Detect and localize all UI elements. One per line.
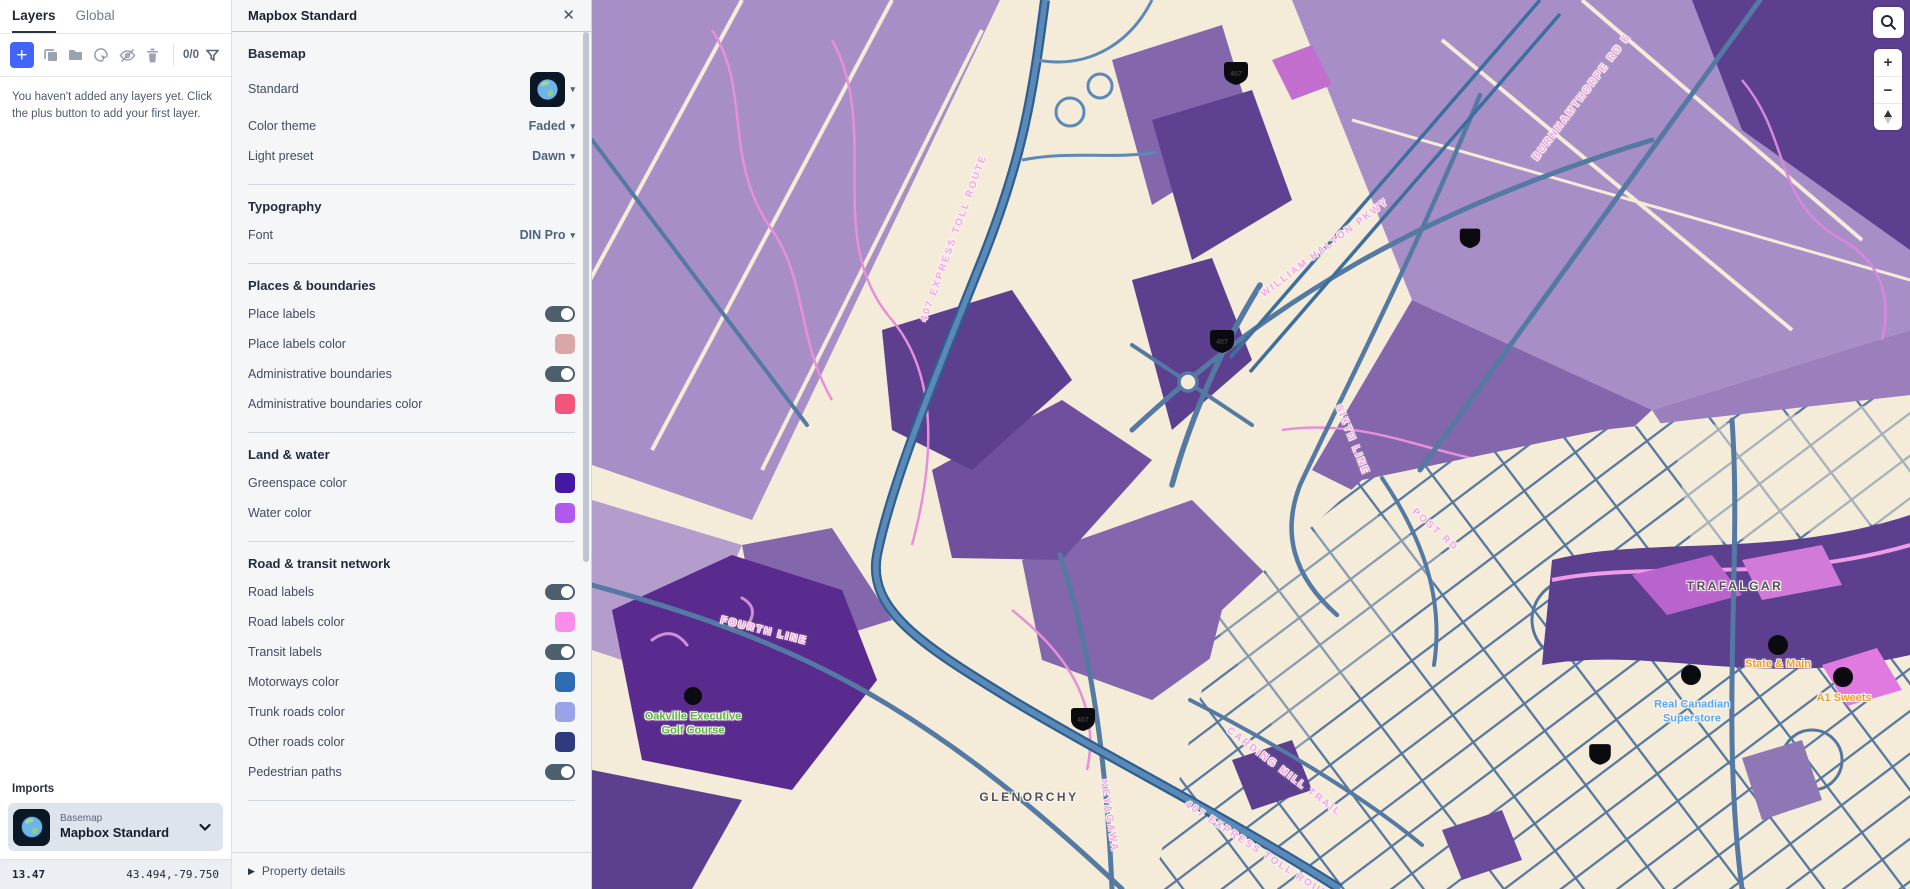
greenspace-color-swatch[interactable]	[555, 473, 575, 493]
map-status-bar: 13.47 43.494,-79.750	[0, 859, 231, 889]
color-theme-row: Color theme Faded▾	[248, 111, 575, 141]
greenspace-color-row: Greenspace color	[248, 468, 575, 498]
road-labels-color-row: Road labels color	[248, 607, 575, 637]
caret-down-icon: ▾	[570, 151, 575, 162]
section-header-roads: Road & transit network	[248, 556, 575, 571]
hide-layers-icon[interactable]	[119, 47, 136, 64]
water-color-label: Water color	[248, 506, 311, 520]
road-labels-color-swatch[interactable]	[555, 612, 575, 632]
panel-scrollbar[interactable]	[583, 32, 589, 562]
font-select[interactable]: DIN Pro▾	[520, 228, 575, 242]
divider	[248, 800, 575, 801]
divider	[248, 184, 575, 185]
transit-labels-label: Transit labels	[248, 645, 322, 659]
import-name: Mapbox Standard	[60, 825, 169, 841]
close-icon[interactable]: ✕	[562, 8, 575, 23]
motorways-color-row: Motorways color	[248, 667, 575, 697]
greenspace-color-label: Greenspace color	[248, 476, 347, 490]
place-labels-row: Place labels	[248, 299, 575, 329]
panel-title: Mapbox Standard	[248, 8, 357, 23]
transit-labels-toggle[interactable]	[545, 644, 575, 660]
standard-row: Standard ▾	[248, 67, 575, 111]
zoom-in-button[interactable]: +	[1874, 49, 1902, 76]
divider	[248, 541, 575, 542]
place-labels-color-row: Place labels color	[248, 329, 575, 359]
road-labels-row: Road labels	[248, 577, 575, 607]
color-theme-label: Color theme	[248, 119, 316, 133]
basemap-properties-panel: Mapbox Standard ✕ Basemap Standard ▾ Col…	[232, 0, 592, 889]
place-labels-color-label: Place labels color	[248, 337, 346, 351]
zoom-level-value: 13.47	[12, 868, 45, 881]
light-preset-label: Light preset	[248, 149, 313, 163]
caret-down-icon: ▾	[570, 230, 575, 241]
svg-text:407: 407	[1077, 717, 1089, 724]
standard-label: Standard	[248, 82, 299, 96]
trunk-roads-color-swatch[interactable]	[555, 702, 575, 722]
caret-down-icon[interactable]: ▾	[570, 84, 575, 95]
chevron-down-icon[interactable]	[197, 819, 213, 835]
light-preset-select[interactable]: Dawn▾	[532, 149, 575, 163]
divider	[248, 432, 575, 433]
property-details-label: Property details	[262, 864, 345, 878]
section-header-typography: Typography	[248, 199, 575, 214]
section-header-land-water: Land & water	[248, 447, 575, 462]
admin-boundaries-color-swatch[interactable]	[555, 394, 575, 414]
duplicate-icon[interactable]	[43, 47, 59, 64]
pedestrian-paths-row: Pedestrian paths	[248, 757, 575, 787]
other-roads-color-row: Other roads color	[248, 727, 575, 757]
layer-counter: 0/0	[183, 49, 199, 61]
trunk-roads-color-label: Trunk roads color	[248, 705, 345, 719]
add-layer-button[interactable]: +	[10, 42, 34, 68]
import-item-basemap[interactable]: Basemap Mapbox Standard	[8, 803, 223, 851]
pedestrian-paths-toggle[interactable]	[545, 764, 575, 780]
divider	[248, 263, 575, 264]
basemap-style-thumbnail[interactable]	[530, 72, 565, 107]
font-row: Font DIN Pro▾	[248, 220, 575, 250]
transit-labels-row: Transit labels	[248, 637, 575, 667]
admin-boundaries-toggle[interactable]	[545, 366, 575, 382]
admin-boundaries-label: Administrative boundaries	[248, 367, 392, 381]
search-button[interactable]	[1873, 7, 1904, 38]
motorways-color-label: Motorways color	[248, 675, 339, 689]
water-color-swatch[interactable]	[555, 503, 575, 523]
place-labels-color-swatch[interactable]	[555, 334, 575, 354]
globe-thumbnail-icon	[13, 809, 50, 846]
admin-boundaries-color-label: Administrative boundaries color	[248, 397, 422, 411]
motorways-color-swatch[interactable]	[555, 672, 575, 692]
map-controls: + −	[1873, 7, 1904, 130]
imports-section: Imports Basemap Mapbox Standard	[0, 775, 231, 859]
empty-layers-message: You haven't added any layers yet. Click …	[0, 77, 231, 136]
place-labels-toggle[interactable]	[545, 306, 575, 322]
color-theme-select[interactable]: Faded▾	[529, 119, 575, 133]
map-canvas[interactable]: 407 407 407 407 EXPRESS TOLL ROUTE407 EX…	[592, 0, 1910, 889]
select-layer-icon[interactable]	[93, 47, 110, 64]
section-header-basemap: Basemap	[248, 46, 575, 61]
coordinates-value: 43.494,-79.750	[126, 868, 219, 881]
water-color-row: Water color	[248, 498, 575, 528]
svg-text:407: 407	[1230, 71, 1242, 78]
other-roads-color-swatch[interactable]	[555, 732, 575, 752]
tab-global[interactable]: Global	[76, 8, 115, 33]
layers-toolbar: + 0/0	[0, 34, 231, 77]
sidebar-tabs: Layers Global	[0, 0, 231, 34]
admin-boundaries-color-row: Administrative boundaries color	[248, 389, 575, 419]
delete-layer-icon[interactable]	[145, 47, 160, 64]
compass-icon[interactable]	[1874, 103, 1902, 130]
imports-header: Imports	[12, 783, 223, 795]
road-labels-label: Road labels	[248, 585, 314, 599]
group-folder-icon[interactable]	[68, 47, 84, 64]
road-labels-color-label: Road labels color	[248, 615, 345, 629]
svg-text:407: 407	[1216, 339, 1228, 346]
trunk-roads-color-row: Trunk roads color	[248, 697, 575, 727]
triangle-right-icon: ▶	[248, 866, 255, 877]
place-labels-label: Place labels	[248, 307, 315, 321]
filter-icon[interactable]	[204, 47, 221, 64]
property-details-expander[interactable]: ▶ Property details	[232, 852, 591, 889]
caret-down-icon: ▾	[570, 121, 575, 132]
tab-layers[interactable]: Layers	[12, 8, 56, 33]
zoom-out-button[interactable]: −	[1874, 76, 1902, 103]
import-type-label: Basemap	[60, 813, 169, 826]
layers-sidebar: Layers Global + 0/0	[0, 0, 232, 889]
mapbox-studio-app: Layers Global + 0/0	[0, 0, 1910, 889]
admin-boundaries-row: Administrative boundaries	[248, 359, 575, 389]
section-header-places: Places & boundaries	[248, 278, 575, 293]
other-roads-color-label: Other roads color	[248, 735, 345, 749]
map-render: 407 407 407	[592, 0, 1910, 889]
pedestrian-paths-label: Pedestrian paths	[248, 765, 342, 779]
road-labels-toggle[interactable]	[545, 584, 575, 600]
toolbar-separator	[173, 44, 174, 66]
font-label: Font	[248, 228, 273, 242]
light-preset-row: Light preset Dawn▾	[248, 141, 575, 171]
